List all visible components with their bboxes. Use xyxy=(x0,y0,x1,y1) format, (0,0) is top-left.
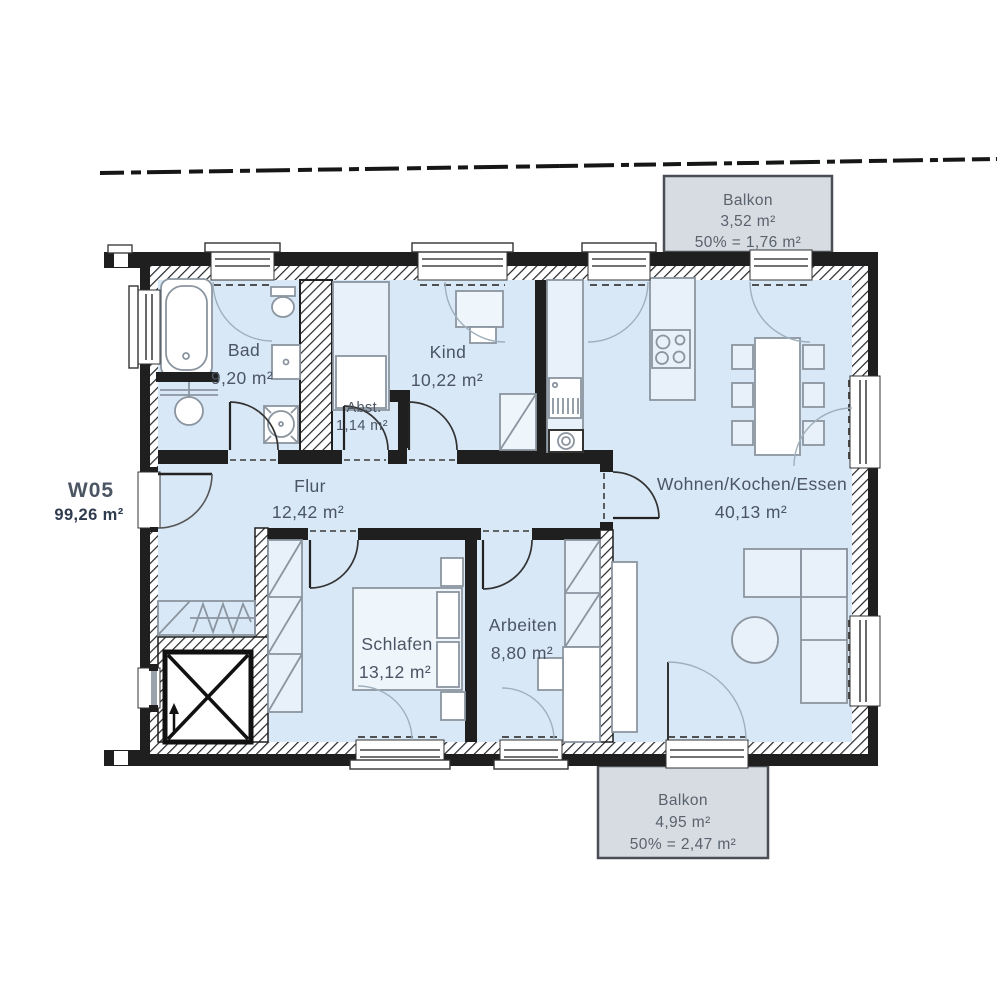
room-area-flur: 12,42 m² xyxy=(272,502,344,522)
arbeiten-shelf-icon xyxy=(565,540,600,647)
balcony-top: Balkon 3,52 m² 50% = 1,76 m² xyxy=(664,176,832,252)
vanity-icon xyxy=(272,345,300,379)
room-name-schlafen: Schlafen xyxy=(361,634,432,654)
room-name-wohnen: Wohnen/Kochen/Essen xyxy=(657,474,847,494)
kitchen-island-icon xyxy=(650,278,695,400)
window-bad-left xyxy=(129,286,160,368)
dining-table-icon xyxy=(732,338,824,455)
room-area-bad: 9,20 m² xyxy=(211,368,273,388)
dishwasher-icon xyxy=(549,430,583,452)
balcony-top-counted: 50% = 1,76 m² xyxy=(695,234,801,251)
room-name-bad: Bad xyxy=(228,340,260,360)
room-name-arbeiten: Arbeiten xyxy=(489,615,557,635)
balcony-bottom-counted: 50% = 2,47 m² xyxy=(630,836,736,853)
bath-partition-wall xyxy=(156,372,218,382)
balcony-bottom: Balkon 4,95 m² 50% = 2,47 m² xyxy=(598,766,768,858)
coffee-table-icon xyxy=(732,617,778,663)
label-unit: W05 99,26 m² xyxy=(54,479,123,524)
balcony-top-name: Balkon xyxy=(723,192,773,209)
elevator xyxy=(165,652,251,742)
room-area-arbeiten: 8,80 m² xyxy=(491,643,553,663)
schlafen-wardrobe-icon xyxy=(268,540,302,712)
room-area-abst: 1,14 m² xyxy=(336,418,388,434)
unit-id: W05 xyxy=(68,479,114,502)
room-name-abst: Abst. xyxy=(346,400,381,416)
room-area-schlafen: 13,12 m² xyxy=(359,662,431,682)
balcony-bottom-name: Balkon xyxy=(658,792,708,809)
room-area-kind: 10,22 m² xyxy=(411,370,483,390)
floorplan-page: Balkon 3,52 m² 50% = 1,76 m² Balkon 4,95… xyxy=(0,0,1000,999)
window-living-right xyxy=(849,616,880,706)
elevator-landing-door xyxy=(138,664,160,712)
desk-icon xyxy=(563,647,600,742)
floorplan-drawing: Balkon 3,52 m² 50% = 1,76 m² Balkon 4,95… xyxy=(0,0,1000,999)
room-name-kind: Kind xyxy=(430,342,467,362)
balcony-top-area: 3,52 m² xyxy=(720,213,775,230)
shower-icon xyxy=(264,406,298,443)
sideboard-icon xyxy=(612,562,637,732)
kind-wardrobe-icon xyxy=(500,394,536,450)
kitchen-counter-icon xyxy=(547,280,583,452)
site-boundary-line xyxy=(100,159,997,173)
bathtub-icon xyxy=(161,279,212,376)
kind-bed-icon xyxy=(333,282,389,410)
unit-area: 99,26 m² xyxy=(54,506,123,524)
toilet-icon xyxy=(271,287,295,317)
room-name-flur: Flur xyxy=(294,476,326,496)
room-area-wohnen: 40,13 m² xyxy=(715,502,787,522)
balcony-bottom-area: 4,95 m² xyxy=(655,814,710,831)
